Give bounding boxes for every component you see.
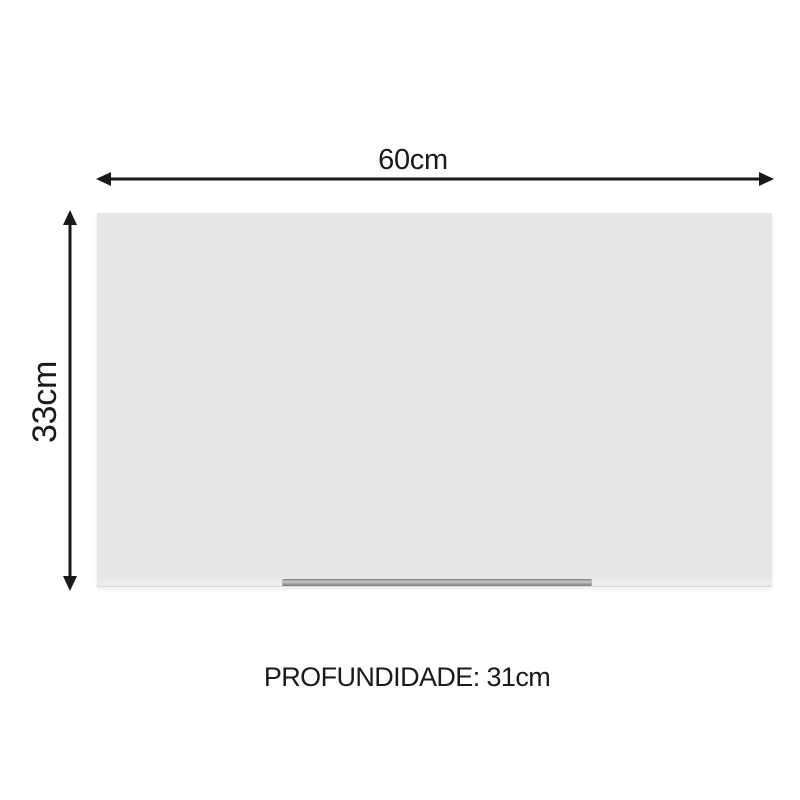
cabinet-handle [282,579,592,586]
arrowhead-left-icon [96,172,111,186]
product-dimension-diagram: 60cm 33cm PROFUNDIDADE: 31cm [0,0,800,800]
height-dimension-label: 33cm [28,361,62,443]
width-dimension-arrow [96,170,774,188]
arrowhead-right-icon [759,172,774,186]
height-dimension-arrow [61,210,79,591]
arrowhead-up-icon [63,210,77,225]
depth-dimension-label: PROFUNDIDADE: 31cm [14,661,800,693]
arrowhead-down-icon [63,576,77,591]
cabinet-front-panel [97,213,772,586]
